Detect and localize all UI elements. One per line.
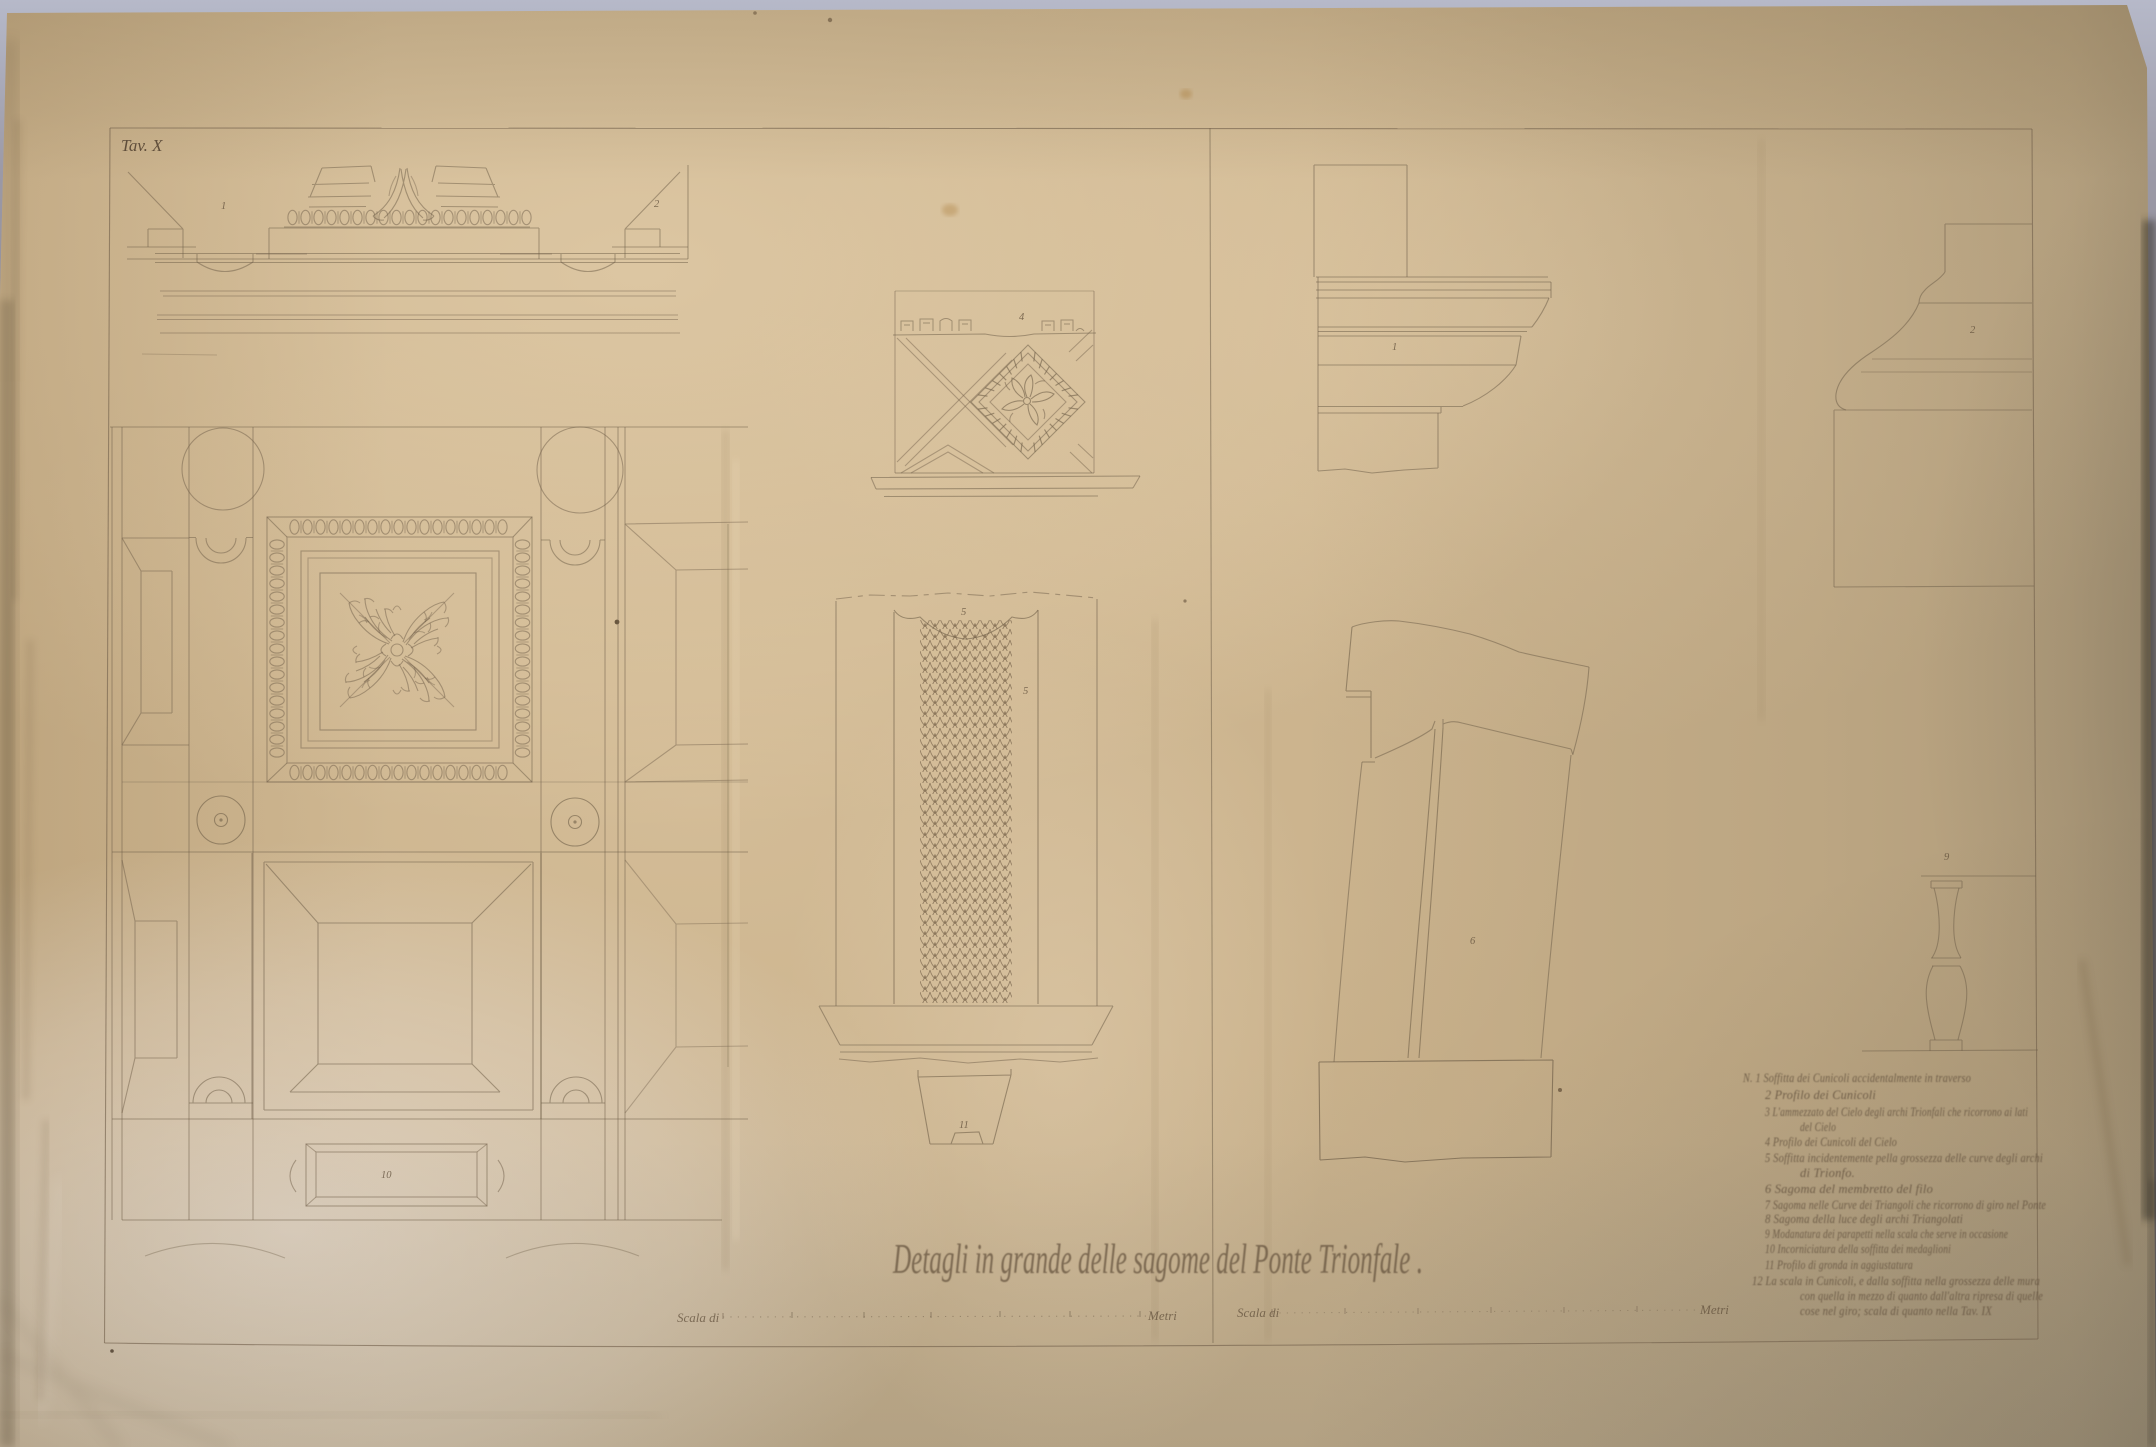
svg-text:1: 1 <box>1392 342 1397 353</box>
svg-text:Detagli in grande delle sagome: Detagli in grande delle sagome del Ponte… <box>892 1237 1423 1283</box>
svg-text:11: 11 <box>959 1120 969 1131</box>
svg-text:10 Incorniciatura della soffi: 10 Incorniciatura della soffitta dei med… <box>1765 1242 1951 1256</box>
svg-text:di Trionfo.: di Trionfo. <box>1800 1166 1855 1180</box>
svg-text:10: 10 <box>381 1170 392 1181</box>
svg-text:8 Sagoma della luce degli arc: 8 Sagoma della luce degli archi Triangol… <box>1765 1212 1963 1226</box>
svg-text:7 Sagoma nelle Curve dei Tria: 7 Sagoma nelle Curve dei Triangoli che r… <box>1765 1198 2046 1212</box>
svg-text:Tav. X: Tav. X <box>121 136 163 155</box>
svg-text:4: 4 <box>1019 312 1025 323</box>
svg-text:11 Profilo di gronda in aggiu: 11 Profilo di gronda in aggiustatura <box>1765 1258 1913 1272</box>
svg-text:Metri: Metri <box>1699 1302 1729 1317</box>
svg-text:Scala di: Scala di <box>1237 1305 1280 1320</box>
svg-text:9: 9 <box>1944 852 1950 863</box>
svg-text:3 L'ammezzato del Cielo degli: 3 L'ammezzato del Cielo degli archi Trio… <box>1764 1105 2028 1119</box>
svg-text:Metri: Metri <box>1147 1308 1177 1323</box>
svg-text:6 Sagoma del membretto del fi: 6 Sagoma del membretto del filo <box>1765 1182 1933 1196</box>
svg-text:N. 1 Soffitta dei Cunicoli ac: N. 1 Soffitta dei Cunicoli accidentalmen… <box>1742 1071 1971 1085</box>
svg-text:con quella in mezzo di quanto: con quella in mezzo di quanto dall'altra… <box>1800 1289 2043 1303</box>
svg-text:cose nel giro; scala di quanto: cose nel giro; scala di quanto nella Tav… <box>1800 1304 1993 1318</box>
svg-text:5: 5 <box>1023 686 1028 697</box>
svg-text:9 Modanatura dei parapetti ne: 9 Modanatura dei parapetti nella scala c… <box>1765 1227 2008 1241</box>
svg-text:5: 5 <box>961 607 966 618</box>
svg-text:2: 2 <box>1970 325 1976 336</box>
svg-text:5 Soffitta incidentemente pel: 5 Soffitta incidentemente pella grossezz… <box>1765 1151 2043 1165</box>
svg-text:12 La scala in Cunicoli, e da: 12 La scala in Cunicoli, e dalla soffitt… <box>1752 1274 2040 1288</box>
svg-text:del Cielo: del Cielo <box>1800 1120 1836 1134</box>
svg-text:2: 2 <box>654 199 660 210</box>
svg-text:4 Profilo dei Cunicoli del Ci: 4 Profilo dei Cunicoli del Cielo <box>1765 1135 1897 1149</box>
svg-text:1: 1 <box>221 201 226 212</box>
svg-text:Scala di: Scala di <box>677 1310 720 1325</box>
svg-text:6: 6 <box>1470 936 1476 947</box>
svg-text:2 Profilo dei Cunicoli: 2 Profilo dei Cunicoli <box>1765 1088 1876 1102</box>
